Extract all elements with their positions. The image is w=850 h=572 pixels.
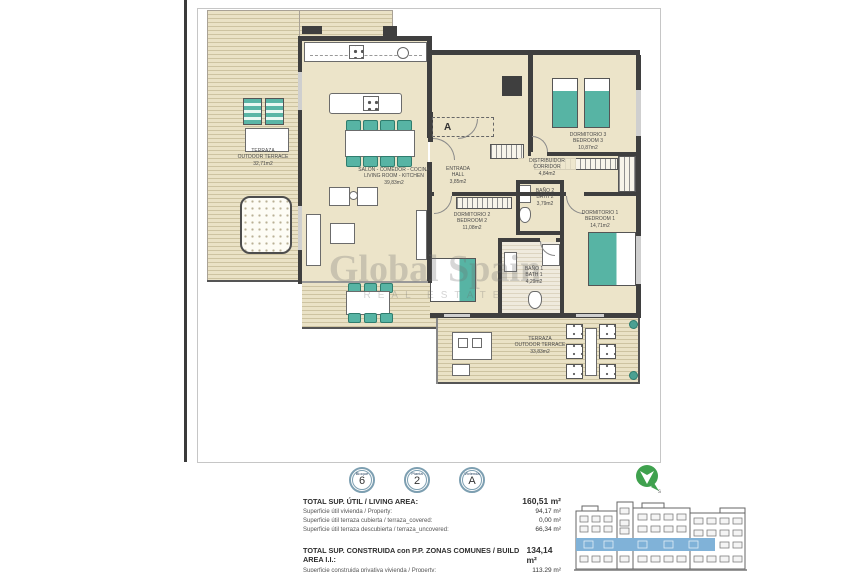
outdoor-chair [599, 344, 616, 359]
outdoor-table [585, 328, 597, 376]
sheet-left-bar [184, 0, 187, 462]
row-label: Superficie construida privativa vivienda… [303, 568, 436, 572]
room-name-en: OUTDOOR TERRACE [506, 342, 574, 348]
toilet-icon [528, 291, 542, 309]
room-area: 3,85m2 [434, 179, 482, 185]
outdoor-chair [566, 364, 583, 379]
sideboard-detail [472, 338, 482, 348]
terrace-edge [302, 327, 438, 329]
table-row: Superficie construida privativa vivienda… [303, 567, 561, 572]
row-value: 160,51 m² [522, 496, 561, 506]
terrace-door-glass [576, 314, 604, 317]
room-area: 4,84m2 [518, 171, 576, 177]
window [636, 236, 641, 284]
tv-bench [416, 210, 427, 260]
room-label-dormitorio-1: DORMITORIO 1 BEDROOM 1 14,71m2 [566, 210, 634, 229]
wall-segment [516, 180, 562, 184]
room-label-entrada: ENTRADA HALL 3,85m2 [434, 166, 482, 185]
outdoor-table [346, 291, 390, 315]
room-area: 10,87m2 [552, 145, 624, 151]
row-label: Superficie útil vivienda / Property: [303, 509, 392, 515]
sun-lounger [243, 98, 262, 125]
row-label: TOTAL SUP. CONSTRUIDA con P.P. ZONAS COM… [303, 546, 527, 564]
badge-planta: Planta 2 [404, 467, 430, 493]
wall-segment [498, 238, 502, 313]
bed [552, 78, 578, 128]
window [636, 90, 641, 136]
armchair [329, 187, 350, 206]
wall-segment [516, 180, 520, 235]
room-area: 33,83m2 [506, 349, 574, 355]
toilet-icon [519, 207, 531, 223]
table-row: Superficie útil vivienda / Property: 94,… [303, 508, 561, 515]
sun-lounger [265, 98, 284, 125]
sofa [306, 214, 321, 266]
table-row: TOTAL SUP. CONSTRUIDA con P.P. ZONAS COM… [303, 545, 561, 565]
dining-chair [397, 156, 412, 167]
sink-icon [397, 47, 409, 59]
badge-inner: Planta 2 [407, 470, 427, 490]
row-label: TOTAL SUP. ÚTIL / LIVING AREA: [303, 497, 418, 506]
badge-bloque: Bloque 6 [349, 467, 375, 493]
badge-vivienda: Vivienda A [459, 467, 485, 493]
terrace-edge [207, 280, 300, 282]
sideboard-detail [458, 338, 468, 348]
coffee-table [330, 223, 355, 244]
compass-south-label: s [658, 489, 661, 495]
armchair [357, 187, 378, 206]
terrace-stool [452, 364, 470, 376]
room-area: 3,79m2 [528, 201, 562, 207]
table-row: Superficie útil terraza descubierta / te… [303, 526, 561, 533]
bed [588, 232, 636, 286]
terrace-edge [638, 316, 640, 384]
room-area: 39,83m2 [348, 180, 440, 186]
area-summary-table: TOTAL SUP. ÚTIL / LIVING AREA: 160,51 m²… [303, 496, 561, 572]
row-label: Superficie útil terraza cubierta / terra… [303, 518, 432, 524]
outdoor-chair [599, 324, 616, 339]
chimney-block [502, 76, 522, 96]
wall-segment [430, 50, 640, 55]
row-value: 66,34 m² [535, 526, 561, 533]
row-value: 0,00 m² [539, 517, 561, 524]
room-label-distribuidor: DISTRIBUIDOR CORRIDOR 4,84m2 [518, 158, 576, 177]
outdoor-chair [364, 313, 377, 323]
plant-icon [629, 371, 638, 380]
dining-chair [346, 156, 361, 167]
compass-icon: s [631, 463, 665, 497]
room-label-terraza-left: TERRAZA OUTDOOR TERRACE 32,71m2 [226, 148, 300, 167]
badge-value: 6 [359, 476, 365, 488]
terrace-edge [436, 316, 438, 384]
room-label-dormitorio-3: DORMITORIO 3 BEDROOM 3 10,87m2 [552, 132, 624, 151]
badge-value: 2 [414, 476, 420, 488]
wall-segment [302, 26, 322, 34]
outdoor-chair [599, 364, 616, 379]
badge-inner: Vivienda A [462, 470, 482, 490]
entry-dashed-outline [432, 117, 494, 137]
bed [584, 78, 610, 128]
side-table [349, 191, 358, 200]
wardrobe [490, 144, 524, 159]
table-row: Superficie útil terraza cubierta / terra… [303, 517, 561, 524]
room-area: 14,71m2 [566, 223, 634, 229]
wall-segment [300, 36, 432, 41]
building-elevation [574, 496, 747, 572]
wall-segment [383, 26, 397, 38]
row-value: 113,29 m² [532, 567, 561, 572]
room-area: 11,08m2 [436, 225, 508, 231]
row-value: 94,17 m² [535, 508, 561, 515]
hob-icon [349, 45, 364, 59]
outdoor-chair [380, 313, 393, 323]
jacuzzi [240, 196, 292, 254]
outdoor-chair [348, 313, 361, 323]
row-value: 134,14 m² [527, 545, 562, 565]
wall-segment [516, 231, 562, 235]
glass-wall [302, 281, 428, 283]
wardrobe [456, 197, 512, 209]
plant-icon [629, 320, 638, 329]
room-label-bano-1: BAÑO 1 BATH 1 4,29m2 [512, 266, 556, 285]
row-label: Superficie útil terraza descubierta / te… [303, 527, 449, 533]
room-label-living: SALON - COMEDOR - COCINA LIVING ROOM - K… [348, 167, 440, 186]
table-row: TOTAL SUP. ÚTIL / LIVING AREA: 160,51 m² [303, 496, 561, 506]
badge-inner: Bloque 6 [352, 470, 372, 490]
section-marker: A [444, 122, 451, 133]
room-area: 32,71m2 [226, 161, 300, 167]
island-hob-icon [363, 96, 379, 111]
window [298, 72, 302, 110]
terrace-door-glass [444, 314, 470, 317]
room-label-bano-2: BAÑO 2 BATH 2 3,79m2 [528, 188, 562, 207]
dining-chair [363, 156, 378, 167]
terrace-edge [436, 382, 640, 384]
wardrobe [618, 156, 636, 192]
window [298, 206, 302, 250]
room-label-terraza-bottom: TERRAZA OUTDOOR TERRACE 33,83m2 [506, 336, 574, 355]
floorplan-page: A TERRAZA OUTDOOR TERRACE 32,71m2 SALON … [0, 0, 850, 572]
door-opening [531, 152, 547, 156]
dining-table [345, 130, 415, 157]
dining-chair [380, 156, 395, 167]
room-label-dormitorio-2: DORMITORIO 2 BEDROOM 2 11,08m2 [436, 212, 508, 231]
bed [430, 258, 476, 302]
room-area: 4,29m2 [512, 279, 556, 285]
badge-value: A [468, 476, 475, 488]
